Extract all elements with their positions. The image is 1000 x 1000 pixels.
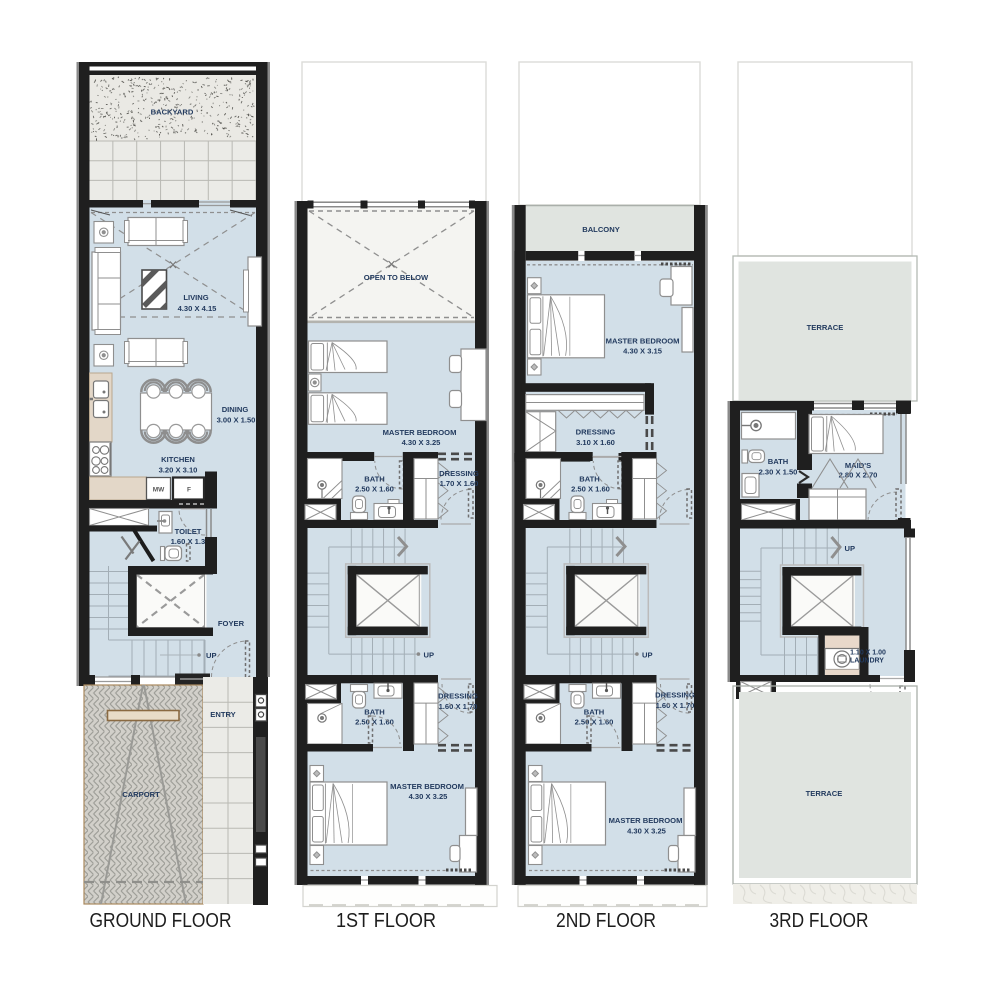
- svg-text:BALCONY: BALCONY: [582, 225, 620, 234]
- svg-text:1.60 X 1.70: 1.60 X 1.70: [439, 702, 478, 711]
- svg-text:2.50 X 1.60: 2.50 X 1.60: [571, 485, 610, 494]
- svg-text:BATH: BATH: [768, 457, 789, 466]
- svg-text:MASTER BEDROOM: MASTER BEDROOM: [609, 816, 683, 825]
- svg-text:BACKYARD: BACKYARD: [151, 108, 194, 117]
- svg-text:4.30 X 3.25: 4.30 X 3.25: [627, 827, 667, 836]
- svg-text:MASTER BEDROOM: MASTER BEDROOM: [390, 782, 464, 791]
- svg-text:MAID'S: MAID'S: [845, 461, 871, 470]
- svg-text:MASTER BEDROOM: MASTER BEDROOM: [383, 428, 457, 437]
- svg-text:2.50 X 1.60: 2.50 X 1.60: [575, 718, 614, 727]
- svg-text:1ST FLOOR: 1ST FLOOR: [336, 910, 436, 932]
- svg-text:GROUND FLOOR: GROUND FLOOR: [90, 910, 232, 932]
- svg-text:4.30 X 4.15: 4.30 X 4.15: [178, 304, 218, 313]
- svg-text:4.30 X 3.15: 4.30 X 3.15: [623, 347, 663, 356]
- svg-text:BATH: BATH: [584, 708, 605, 717]
- svg-text:3RD FLOOR: 3RD FLOOR: [770, 910, 869, 932]
- svg-text:1.10 X 1.00: 1.10 X 1.00: [850, 650, 886, 657]
- svg-text:3.00 X 1.50: 3.00 X 1.50: [217, 416, 256, 425]
- svg-text:DRESSING: DRESSING: [438, 692, 478, 701]
- svg-text:3.20 X 3.10: 3.20 X 3.10: [159, 466, 198, 475]
- svg-text:4.30 X 3.25: 4.30 X 3.25: [402, 438, 442, 447]
- svg-text:LIVING: LIVING: [183, 293, 208, 302]
- svg-text:UP: UP: [424, 651, 435, 660]
- svg-text:MW: MW: [153, 487, 165, 494]
- svg-text:UP: UP: [642, 651, 653, 660]
- svg-text:MASTER BEDROOM: MASTER BEDROOM: [606, 336, 680, 345]
- svg-text:DRESSING: DRESSING: [576, 428, 616, 437]
- svg-text:DINING: DINING: [222, 405, 249, 414]
- svg-text:TERRACE: TERRACE: [807, 323, 844, 332]
- svg-text:2ND FLOOR: 2ND FLOOR: [556, 910, 656, 932]
- svg-text:2.80 X 2.70: 2.80 X 2.70: [839, 471, 878, 480]
- svg-text:UP: UP: [845, 544, 856, 553]
- svg-text:BATH: BATH: [579, 475, 600, 484]
- svg-text:2.50 X 1.60: 2.50 X 1.60: [355, 718, 394, 727]
- svg-text:2.50 X 1.60: 2.50 X 1.60: [355, 485, 394, 494]
- svg-text:BATH: BATH: [364, 708, 385, 717]
- svg-text:TERRACE: TERRACE: [806, 789, 843, 798]
- svg-text:1.60 X 1.30: 1.60 X 1.30: [171, 537, 210, 546]
- svg-text:4.30 X 3.25: 4.30 X 3.25: [409, 792, 449, 801]
- svg-text:3.10 X 1.60: 3.10 X 1.60: [576, 438, 615, 447]
- svg-text:LAUNDRY: LAUNDRY: [850, 658, 884, 665]
- svg-text:UP: UP: [206, 651, 217, 660]
- svg-text:OPEN TO BELOW: OPEN TO BELOW: [364, 273, 429, 282]
- svg-text:ENTRY: ENTRY: [210, 710, 235, 719]
- svg-text:FOYER: FOYER: [218, 619, 245, 628]
- svg-text:BATH: BATH: [364, 475, 385, 484]
- svg-text:TOILET: TOILET: [175, 527, 202, 536]
- svg-text:F: F: [187, 487, 191, 494]
- svg-text:2.30 X 1.50: 2.30 X 1.50: [759, 468, 798, 477]
- svg-text:DRESSING: DRESSING: [439, 469, 479, 478]
- svg-text:1.70 X 1.60: 1.70 X 1.60: [440, 479, 479, 488]
- svg-text:CARPORT: CARPORT: [122, 790, 160, 799]
- svg-text:KITCHEN: KITCHEN: [161, 455, 195, 464]
